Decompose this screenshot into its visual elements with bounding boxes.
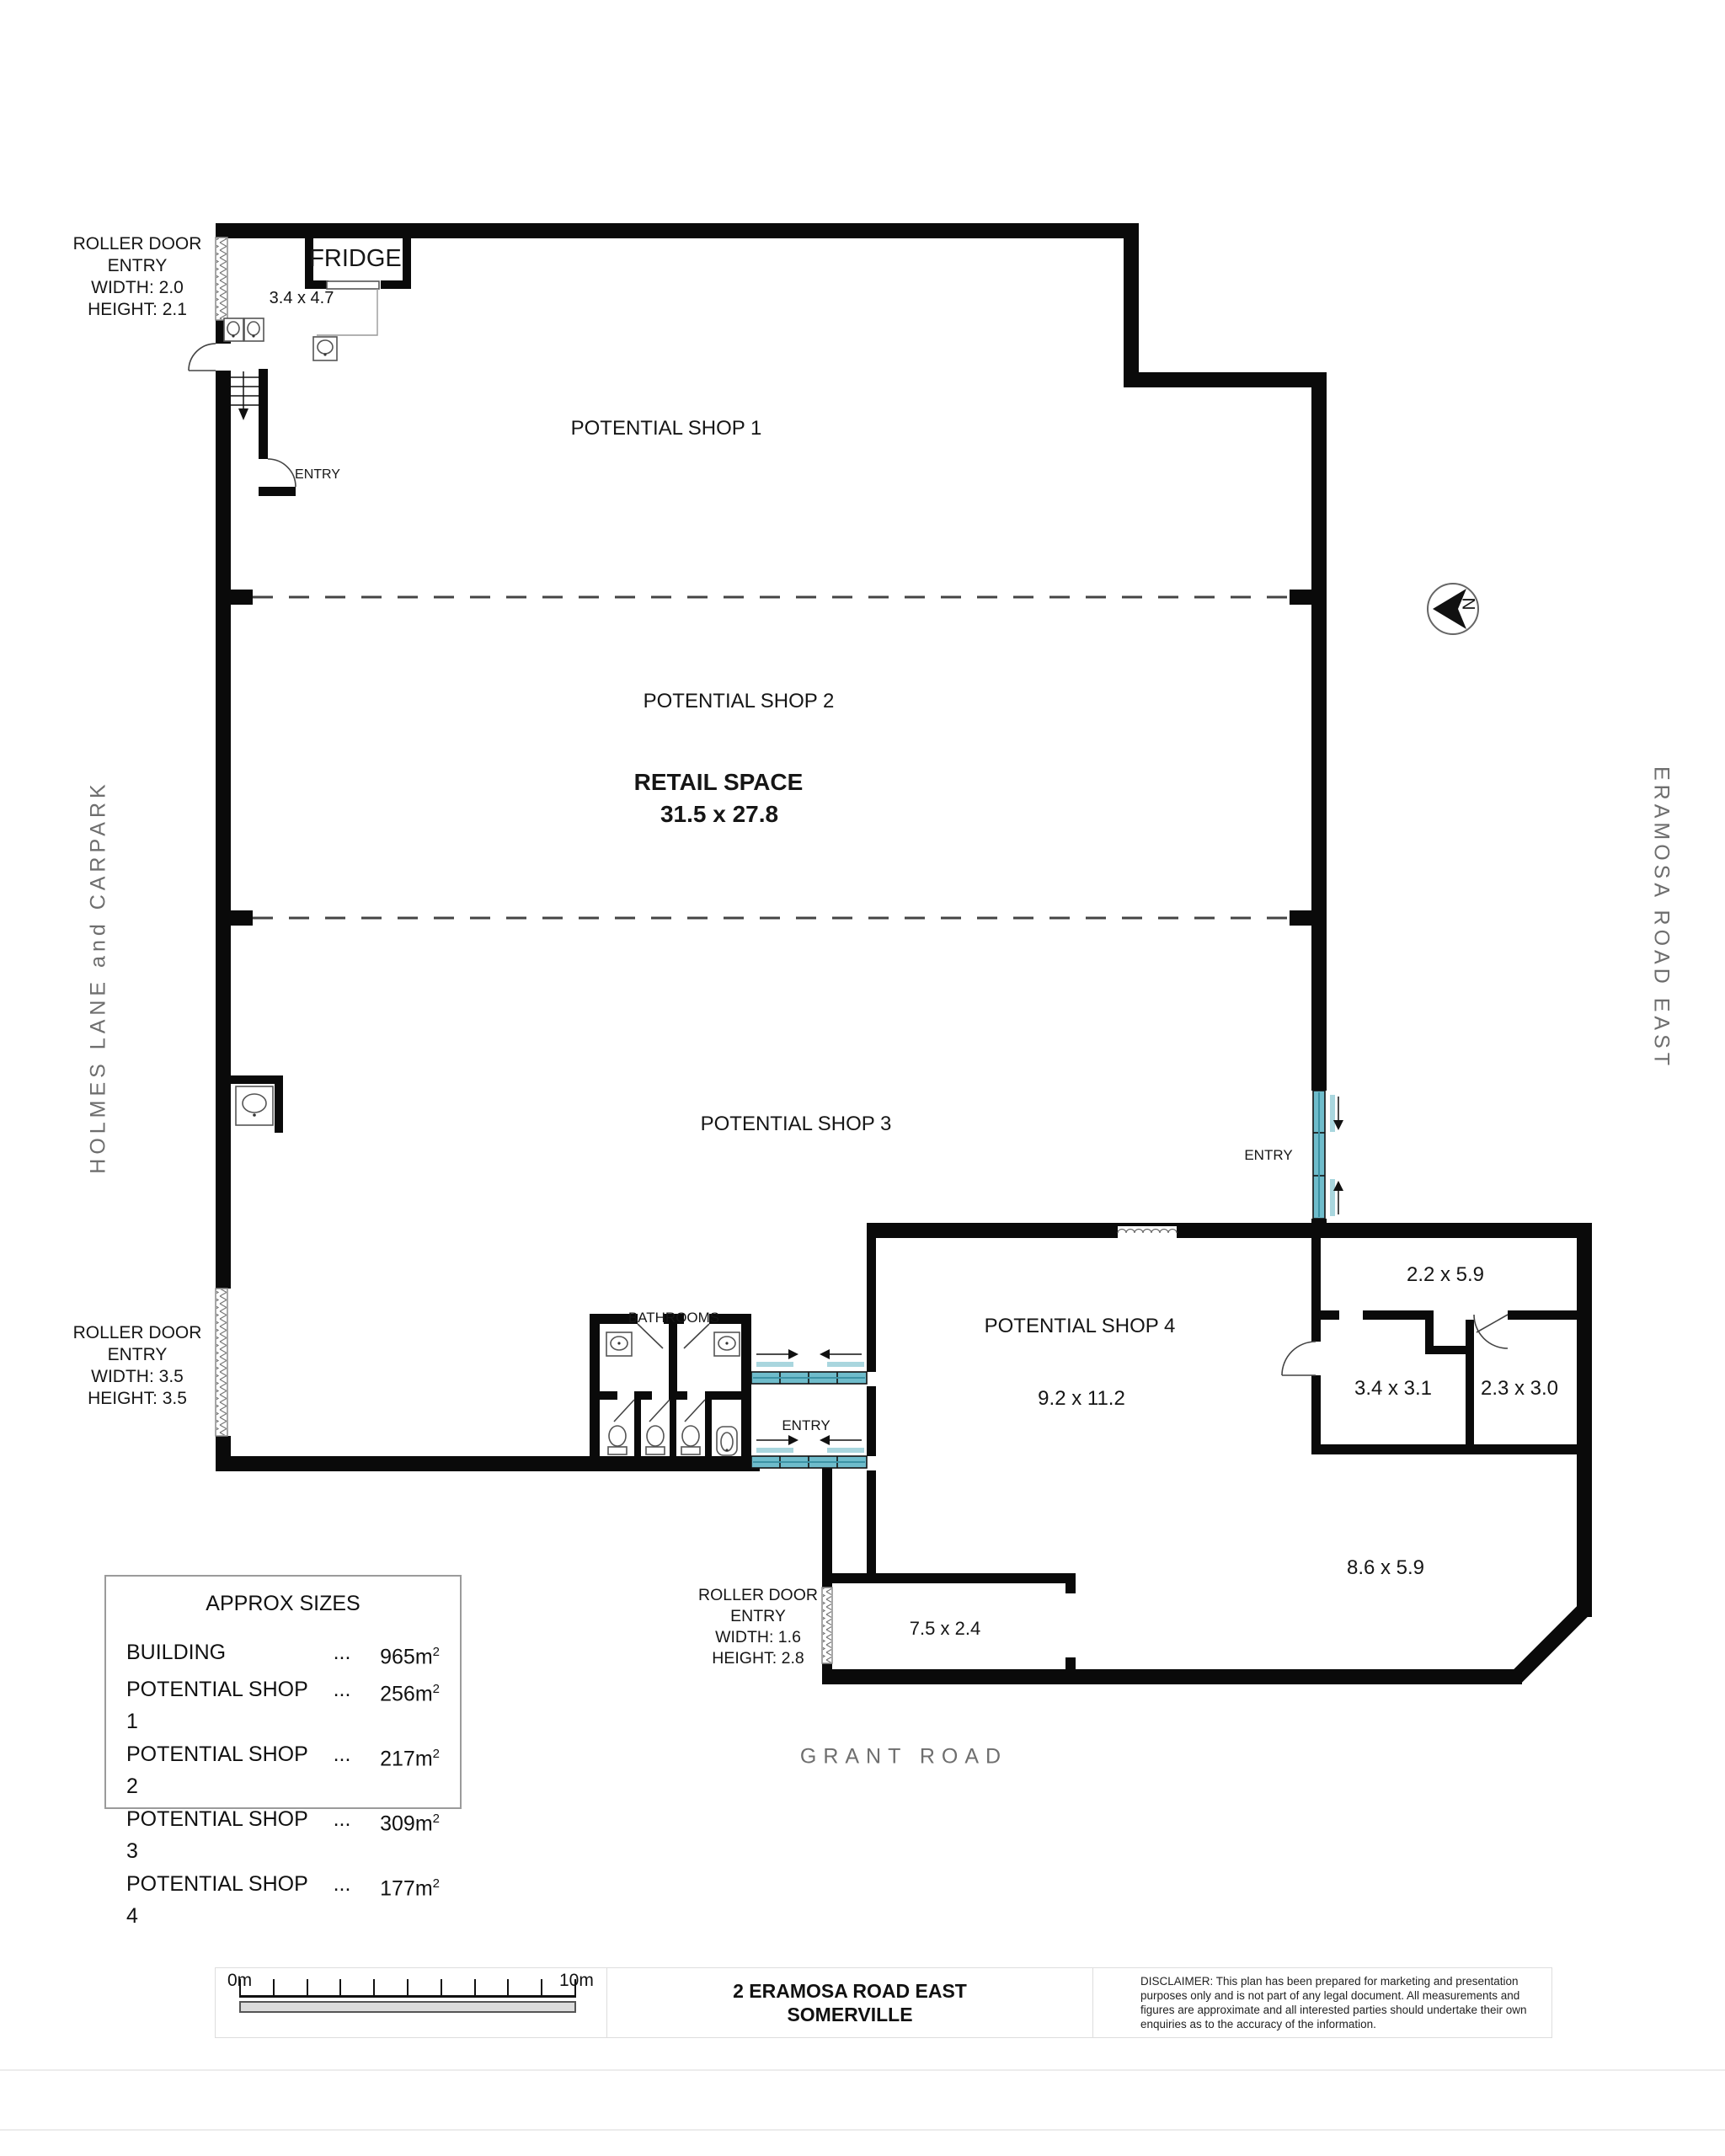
size-value-number: 309m [380,1812,433,1835]
roller-door-top-left-icon [216,237,227,320]
disclaimer-text: DISCLAIMER: This plan has been prepared … [1092,1968,1551,2037]
roller-door-bottom-label: ROLLER DOOR ENTRY WIDTH: 1.6 HEIGHT: 2.8 [698,1586,818,1668]
roller-door-shop4-icon [1118,1223,1177,1233]
size-label: POTENTIAL SHOP 4 [126,1868,325,1933]
size-dots: ... [325,1636,359,1673]
shop1-label: POTENTIAL SHOP 1 [571,417,762,440]
door-swings [189,344,1508,1422]
address-line2: SOMERVILLE [607,2003,1092,2026]
size-dots: ... [325,1673,359,1738]
roller-bottom-line1: ROLLER DOOR [698,1586,818,1604]
retail-space-label: RETAIL SPACE [634,769,804,795]
retail-dims-label: 31.5 x 27.8 [660,801,778,827]
size-value-number: 965m [380,1645,433,1668]
roller-door-bottom-icon [822,1588,832,1663]
roller-mid-line2: ENTRY [108,1345,168,1364]
north-label: N [1460,597,1479,610]
scale-ruler-bar [239,2001,576,2013]
size-value-number: 217m [380,1747,433,1770]
size-value-sup: 2 [433,1812,440,1826]
size-label: POTENTIAL SHOP 1 [126,1673,325,1738]
north-arrow-icon: N [1428,584,1479,634]
approx-sizes-title: APPROX SIZES [106,1592,460,1616]
shop2-label: POTENTIAL SHOP 2 [644,690,835,712]
roller-mid-line3: WIDTH: 3.5 [91,1367,184,1386]
shop3-sink-icon [236,1086,273,1125]
entry-vestibule-label: ENTRY [782,1417,830,1433]
size-label: POTENTIAL SHOP 2 [126,1738,325,1803]
room-3-4x3-1-label: 3.4 x 3.1 [1354,1377,1432,1400]
roller-top-line4: HEIGHT: 2.1 [88,300,187,319]
size-value: 177m2 [359,1868,440,1933]
approx-sizes-rows: BUILDING ... 965m2 POTENTIAL SHOP 1 ... … [106,1636,460,1933]
size-value-sup: 2 [433,1747,440,1761]
size-value: 309m2 [359,1803,440,1868]
size-dots: ... [325,1803,359,1868]
fridge-dims-label: 3.4 x 4.7 [270,289,334,307]
divider-line-upper [0,2069,1725,2071]
entry-sliding-door-right [1313,1091,1343,1219]
bathrooms-label: BATHROOMS [628,1310,719,1326]
urinal-icon [717,1427,737,1455]
entry-top-label: ENTRY [295,467,340,482]
scale-ruler-ticks [239,1979,576,1998]
scale-bar: 0m 10m [216,1968,606,2037]
size-value-sup: 2 [433,1645,440,1659]
divider-line-lower [0,2129,1725,2131]
roller-door-mid-label: ROLLER DOOR ENTRY WIDTH: 3.5 HEIGHT: 3.5 [73,1323,202,1408]
road-label-eramosa-road: ERAMOSA ROAD EAST [1649,766,1674,1070]
size-value-sup: 2 [433,1682,440,1696]
size-row-shop3: POTENTIAL SHOP 3 ... 309m2 [106,1803,460,1868]
double-sink-icon [224,318,264,341]
toilet-icons [608,1426,700,1454]
shop3-label: POTENTIAL SHOP 3 [701,1113,892,1135]
roller-bottom-line4: HEIGHT: 2.8 [712,1649,804,1668]
size-value-number: 256m [380,1682,433,1705]
roller-door-top-label: ROLLER DOOR ENTRY WIDTH: 2.0 HEIGHT: 2.1 [73,234,202,319]
floor-plan-page: N POTENTIAL SHOP 1 POTENTIAL SHOP 2 RETA… [0,0,1725,2156]
roller-top-line1: ROLLER DOOR [73,234,202,253]
size-value: 217m2 [359,1738,440,1803]
room-7-5x2-4-label: 7.5 x 2.4 [910,1618,980,1639]
shop4-dims-label: 9.2 x 11.2 [1038,1387,1125,1410]
entry-right-label: ENTRY [1244,1147,1292,1163]
size-row-shop1: POTENTIAL SHOP 1 ... 256m2 [106,1673,460,1738]
room-2-2x5-9-label: 2.2 x 5.9 [1407,1263,1484,1286]
footer-bar: 0m 10m 2 ERAMOSA ROAD EAST SOMERVILLE DI… [215,1967,1552,2038]
roller-bottom-line2: ENTRY [730,1607,786,1625]
roller-top-line2: ENTRY [108,256,168,275]
shop4-label: POTENTIAL SHOP 4 [985,1315,1176,1337]
entry-sliding-door-vestibule-bottom [751,1435,867,1468]
road-label-grant-road: GRANT ROAD [800,1745,1007,1769]
size-label: POTENTIAL SHOP 3 [126,1803,325,1868]
size-row-shop4: POTENTIAL SHOP 4 ... 177m2 [106,1868,460,1933]
size-value-sup: 2 [433,1876,440,1891]
entry-sliding-door-vestibule-top [751,1349,867,1384]
approx-sizes-panel: APPROX SIZES BUILDING ... 965m2 POTENTIA… [104,1575,462,1809]
roller-top-line3: WIDTH: 2.0 [91,278,184,297]
size-dots: ... [325,1738,359,1803]
roller-bottom-line3: WIDTH: 1.6 [715,1628,801,1646]
size-value-number: 177m [380,1876,433,1900]
address-line1: 2 ERAMOSA ROAD EAST [607,1979,1092,2003]
fridge-label: FRIDGE [309,245,402,272]
size-row-shop2: POTENTIAL SHOP 2 ... 217m2 [106,1738,460,1803]
room-2-3x3-0-label: 2.3 x 3.0 [1481,1377,1558,1400]
size-label: BUILDING [126,1636,325,1673]
roller-mid-line4: HEIGHT: 3.5 [88,1389,187,1408]
exterior-walls [216,223,1592,1684]
address-block: 2 ERAMOSA ROAD EAST SOMERVILLE [606,1968,1092,2037]
size-dots: ... [325,1868,359,1933]
stairs-icon [231,371,259,420]
room-8-6x5-9-label: 8.6 x 5.9 [1347,1556,1424,1579]
roller-mid-line1: ROLLER DOOR [73,1323,202,1342]
roller-door-mid-left-icon [216,1289,227,1436]
size-value: 965m2 [359,1636,440,1673]
size-row-building: BUILDING ... 965m2 [106,1636,460,1673]
size-value: 256m2 [359,1673,440,1738]
road-label-holmes-lane: HOLMES LANE and CARPARK [87,780,111,1173]
interior-walls [231,238,1592,1669]
